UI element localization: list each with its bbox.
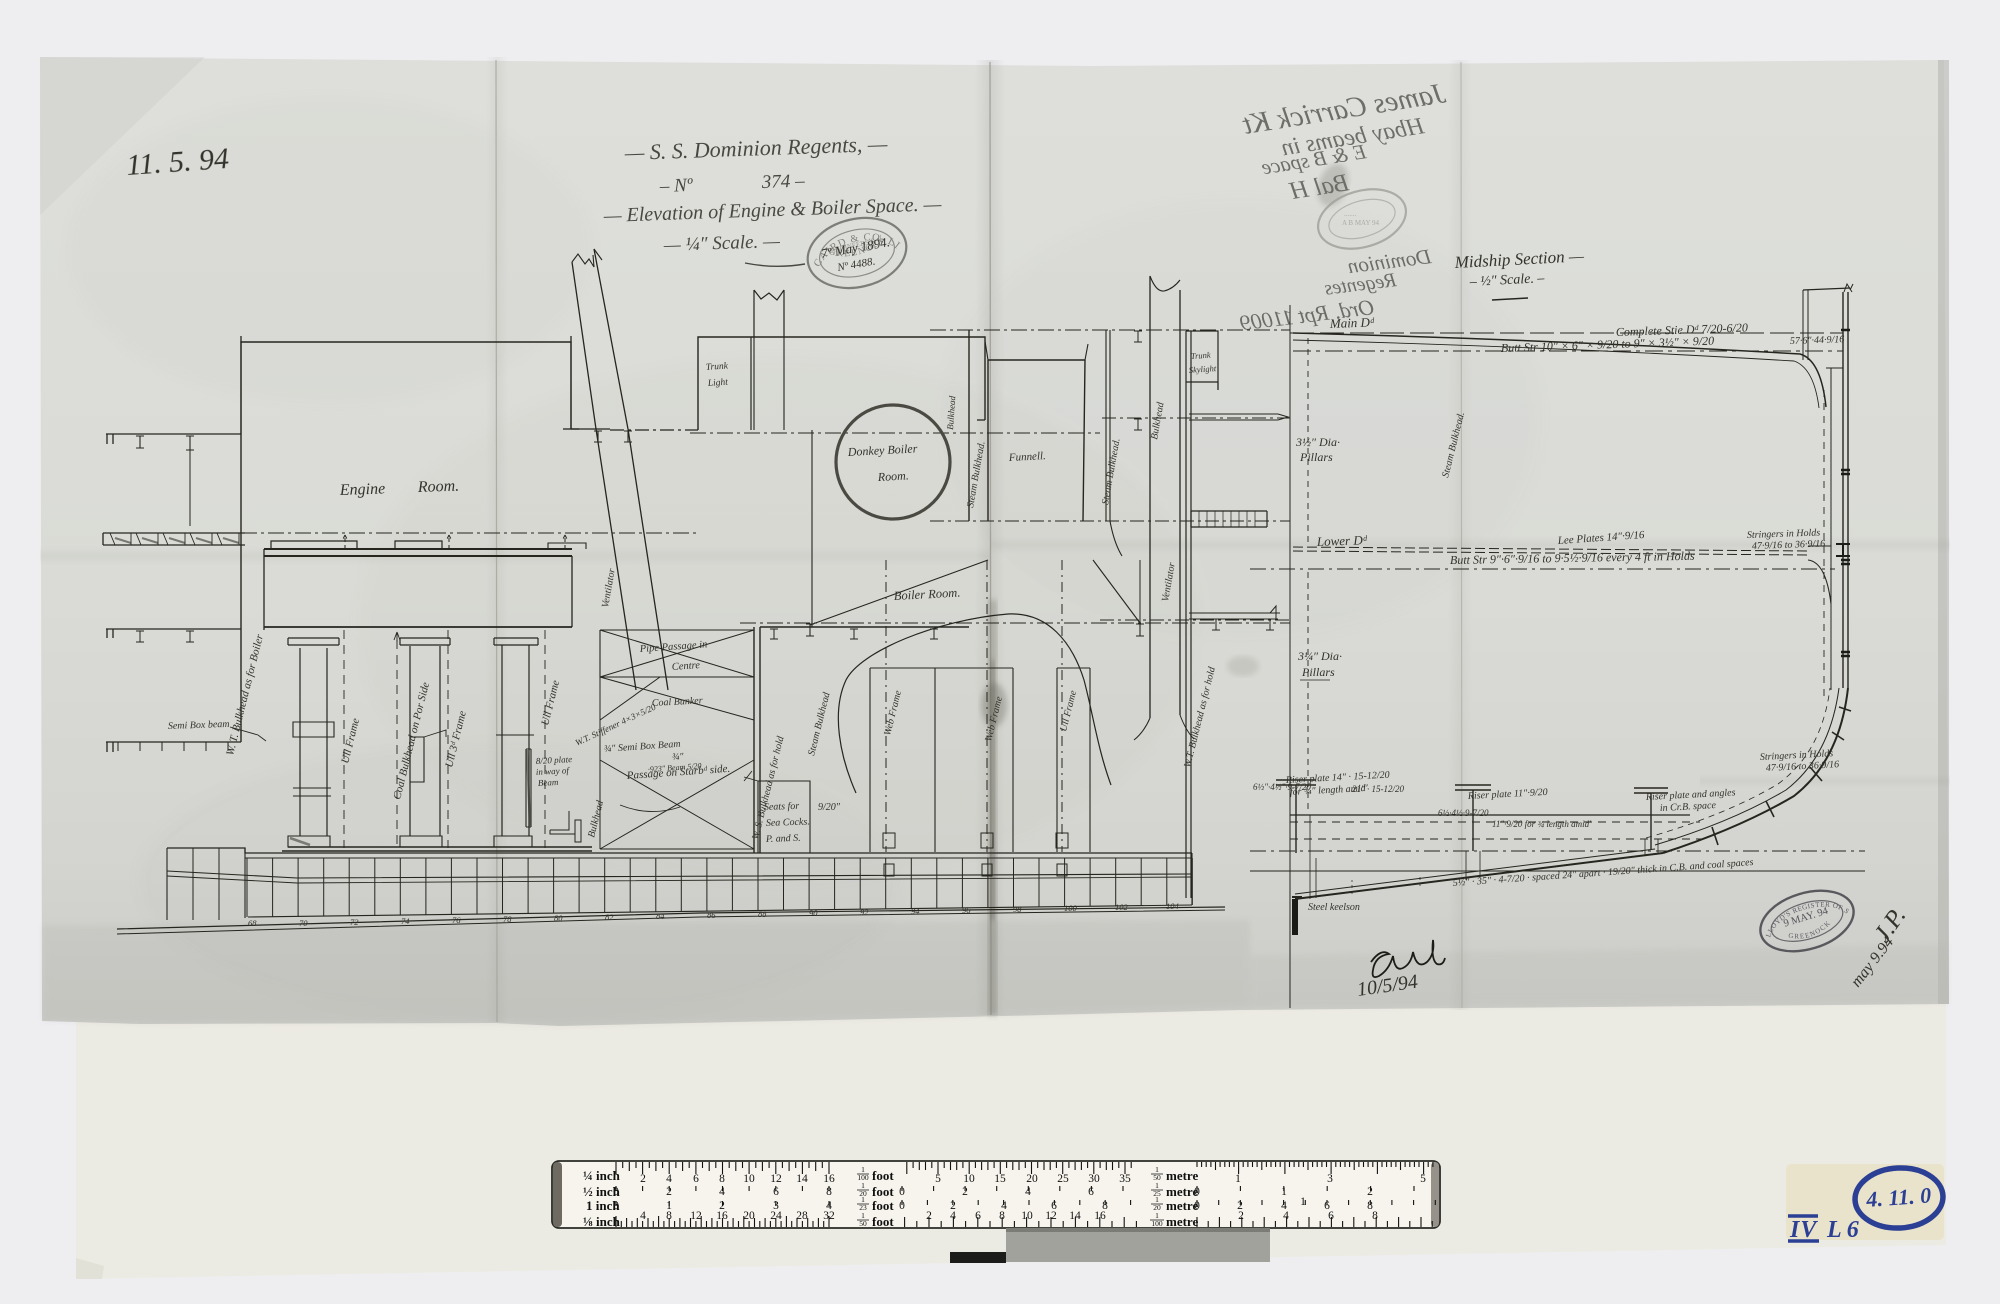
svg-text:metre: metre [1166,1168,1198,1183]
svg-text:102: 102 [1115,902,1129,912]
svg-text:92: 92 [860,907,869,917]
svg-text:21″ · 15-12/20: 21″ · 15-12/20 [1352,784,1404,794]
svg-text:3: 3 [1327,1173,1333,1185]
svg-text:metre: metre [1166,1214,1198,1229]
svg-text:Room.: Room. [876,468,909,484]
svg-text:72: 72 [350,917,359,927]
svg-text:104: 104 [1166,901,1180,911]
svg-text:8: 8 [719,1173,725,1185]
svg-text:Sea Cocks.: Sea Cocks. [766,816,810,829]
svg-text:90: 90 [809,908,818,918]
svg-text:8: 8 [826,1186,832,1198]
svg-text:86: 86 [707,910,716,920]
svg-text:foot: foot [872,1184,894,1199]
svg-text:4: 4 [719,1186,725,1198]
svg-text:P. and S.: P. and S. [765,833,801,845]
svg-text:1: 1 [1300,1196,1306,1208]
svg-text:8/20 plate: 8/20 plate [536,754,573,766]
svg-text:25: 25 [1057,1173,1069,1185]
svg-text:32: 32 [823,1210,835,1222]
svg-text:10: 10 [1021,1210,1033,1222]
svg-text:0: 0 [899,1200,905,1212]
svg-text:Main Dᵈ: Main Dᵈ [1329,314,1376,331]
svg-text:4. 11. 0: 4. 11. 0 [1865,1182,1932,1212]
svg-text:Trunk: Trunk [706,361,730,373]
svg-text:Lower Dᵈ: Lower Dᵈ [1316,532,1368,549]
svg-text:84: 84 [656,911,665,921]
svg-text:9/20″: 9/20″ [818,802,841,813]
svg-text:4: 4 [640,1210,646,1222]
svg-text:16: 16 [716,1210,728,1222]
svg-text:2: 2 [962,1186,968,1198]
svg-text:Light: Light [707,378,729,389]
svg-text:68: 68 [248,918,257,928]
svg-text:Steel keelson: Steel keelson [1308,902,1360,913]
svg-text:4: 4 [1283,1210,1289,1222]
svg-text:0: 0 [1194,1186,1200,1198]
svg-text:Trunk: Trunk [1190,350,1211,361]
svg-text:6: 6 [773,1186,779,1198]
svg-text:8: 8 [666,1210,672,1222]
svg-text:in way of: in way of [536,765,571,777]
svg-text:6½·4½·9-7/20: 6½·4½·9-7/20 [1438,808,1489,818]
svg-text:98: 98 [1013,904,1022,914]
svg-text:94: 94 [911,906,920,916]
svg-text:6: 6 [975,1210,981,1222]
svg-text:6: 6 [1088,1186,1094,1198]
svg-text:6: 6 [693,1173,699,1185]
svg-text:¼ inch: ¼ inch [583,1168,621,1183]
svg-text:L 6: L 6 [1826,1217,1859,1243]
svg-text:5: 5 [1420,1173,1426,1185]
svg-text:8: 8 [1372,1210,1378,1222]
svg-text:¾″: ¾″ [672,751,685,763]
svg-text:foot: foot [872,1168,894,1183]
svg-text:12: 12 [690,1210,702,1222]
svg-text:30: 30 [1088,1173,1100,1185]
svg-text:A B MAY 94: A B MAY 94 [1342,219,1380,227]
svg-text:57·6″·44·9/16: 57·6″·44·9/16 [1790,334,1845,347]
svg-text:2: 2 [640,1173,646,1185]
svg-text:5: 5 [935,1173,941,1185]
svg-text:16: 16 [1094,1210,1106,1222]
svg-text:20: 20 [1026,1173,1038,1185]
svg-text:Pillars: Pillars [1299,450,1333,464]
svg-text:– Nº: – Nº [658,175,694,197]
svg-text:foot: foot [872,1214,894,1229]
svg-text:Semi Box beam: Semi Box beam [168,719,230,732]
svg-text:10: 10 [963,1173,975,1185]
svg-text:Centre: Centre [671,660,700,673]
svg-text:11″·9/20 for ¾ length amid′: 11″·9/20 for ¾ length amid′ [1492,819,1592,829]
svg-text:Funnell.: Funnell. [1008,450,1047,464]
svg-text:88: 88 [758,909,767,919]
svg-text:4: 4 [950,1210,956,1222]
svg-text:.......: ....... [1344,210,1357,218]
svg-text:Engine: Engine [339,480,386,499]
svg-text:12: 12 [770,1173,782,1185]
svg-text:14: 14 [796,1173,808,1185]
svg-text:3½″ Dia·: 3½″ Dia· [1295,435,1340,449]
svg-text:1: 1 [1235,1173,1241,1185]
svg-text:10: 10 [743,1173,755,1185]
svg-text:2: 2 [1238,1210,1244,1222]
svg-text:Room.: Room. [417,478,460,496]
svg-text:foot: foot [872,1198,894,1213]
svg-text:3¼″ Dia·: 3¼″ Dia· [1297,649,1342,663]
svg-text:100: 100 [1064,903,1078,913]
svg-text:82: 82 [605,912,614,922]
svg-text:74: 74 [401,916,410,926]
svg-text:20: 20 [743,1210,755,1222]
svg-text:15: 15 [994,1173,1006,1185]
svg-text:14: 14 [1069,1210,1081,1222]
svg-text:80: 80 [554,913,563,923]
svg-text:78: 78 [503,914,512,924]
svg-text:— ¼″ Scale. —: — ¼″ Scale. — [662,231,780,256]
svg-text:IV: IV [1789,1217,1818,1243]
svg-text:⅛ inch: ⅛ inch [583,1214,621,1229]
svg-text:0: 0 [899,1186,905,1198]
svg-text:16: 16 [823,1173,835,1185]
svg-text:374 –: 374 – [760,171,805,194]
svg-text:1: 1 [1281,1186,1287,1198]
svg-text:70: 70 [299,918,308,928]
svg-text:28: 28 [796,1210,808,1222]
svg-text:2: 2 [666,1186,672,1198]
svg-text:0: 0 [613,1200,619,1212]
svg-text:Skylight: Skylight [1188,363,1217,375]
svg-text:12: 12 [1045,1210,1057,1222]
svg-text:6½″·4½″·9-7/20: 6½″·4½″·9-7/20 [1253,782,1311,792]
svg-text:4: 4 [1025,1186,1031,1198]
svg-text:0: 0 [613,1186,619,1198]
svg-text:24: 24 [770,1210,782,1222]
svg-text:96: 96 [962,905,971,915]
svg-text:2: 2 [1367,1186,1373,1198]
svg-text:6: 6 [1328,1210,1334,1222]
svg-text:2: 2 [926,1210,932,1222]
svg-text:Beam: Beam [538,777,559,788]
svg-text:4: 4 [666,1173,672,1185]
svg-text:0: 0 [1194,1200,1200,1212]
svg-text:8: 8 [999,1210,1005,1222]
svg-text:76: 76 [452,915,461,925]
svg-text:Pillars: Pillars [1301,665,1335,679]
svg-text:35: 35 [1119,1173,1131,1185]
